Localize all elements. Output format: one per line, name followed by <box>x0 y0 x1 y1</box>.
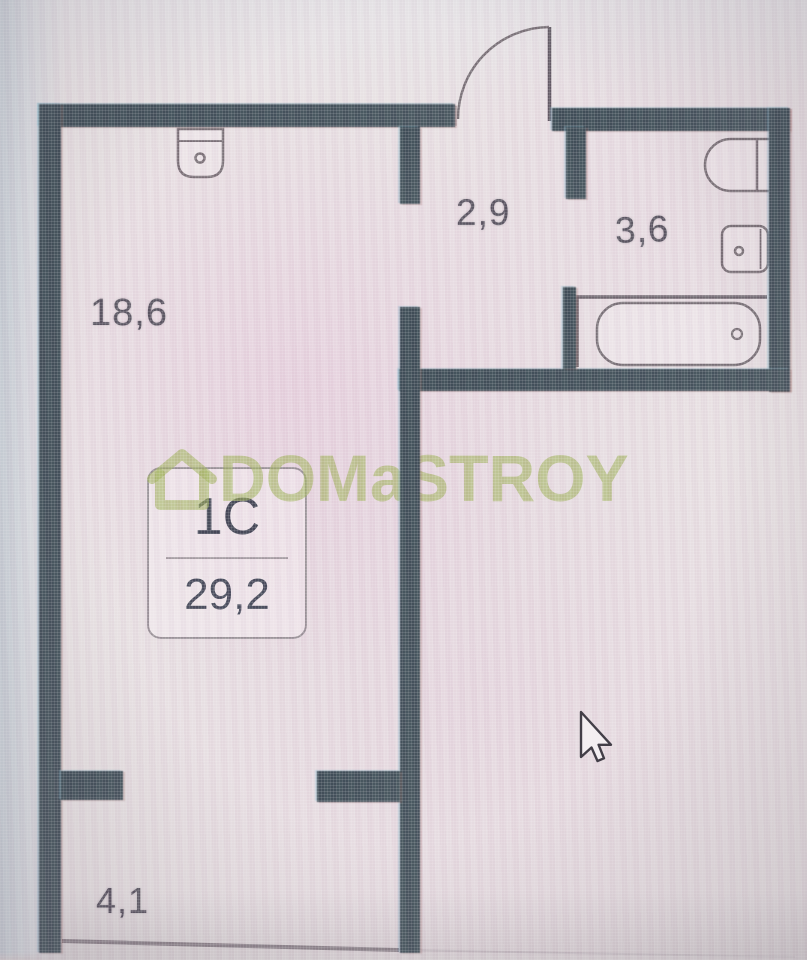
wall-bath-divider-lower <box>563 287 576 369</box>
wall-top-right <box>552 108 790 131</box>
living-room-area-label: 18,6 <box>90 295 168 332</box>
hallway-area-label: 2,9 <box>456 194 510 231</box>
floor-plan-photo: DOMaSTROY 1C 29,2 <box>0 0 807 960</box>
photo-bottom-edge <box>0 952 807 960</box>
wall-room-divider-lower <box>400 307 420 953</box>
wall-room-divider-upper <box>400 127 420 204</box>
bathroom-area-label: 3,6 <box>614 210 670 249</box>
wall-right-exterior <box>769 108 790 392</box>
wall-balcony-stub-left <box>61 771 123 800</box>
wall-wetzone-bottom <box>399 369 790 391</box>
wall-bath-divider-upper <box>566 127 586 199</box>
walls-layer <box>0 0 807 960</box>
wall-top-left <box>39 104 455 127</box>
balcony-area-label: 4,1 <box>96 882 149 919</box>
wall-left-exterior <box>39 104 61 953</box>
wall-balcony-stub-right <box>317 771 400 802</box>
